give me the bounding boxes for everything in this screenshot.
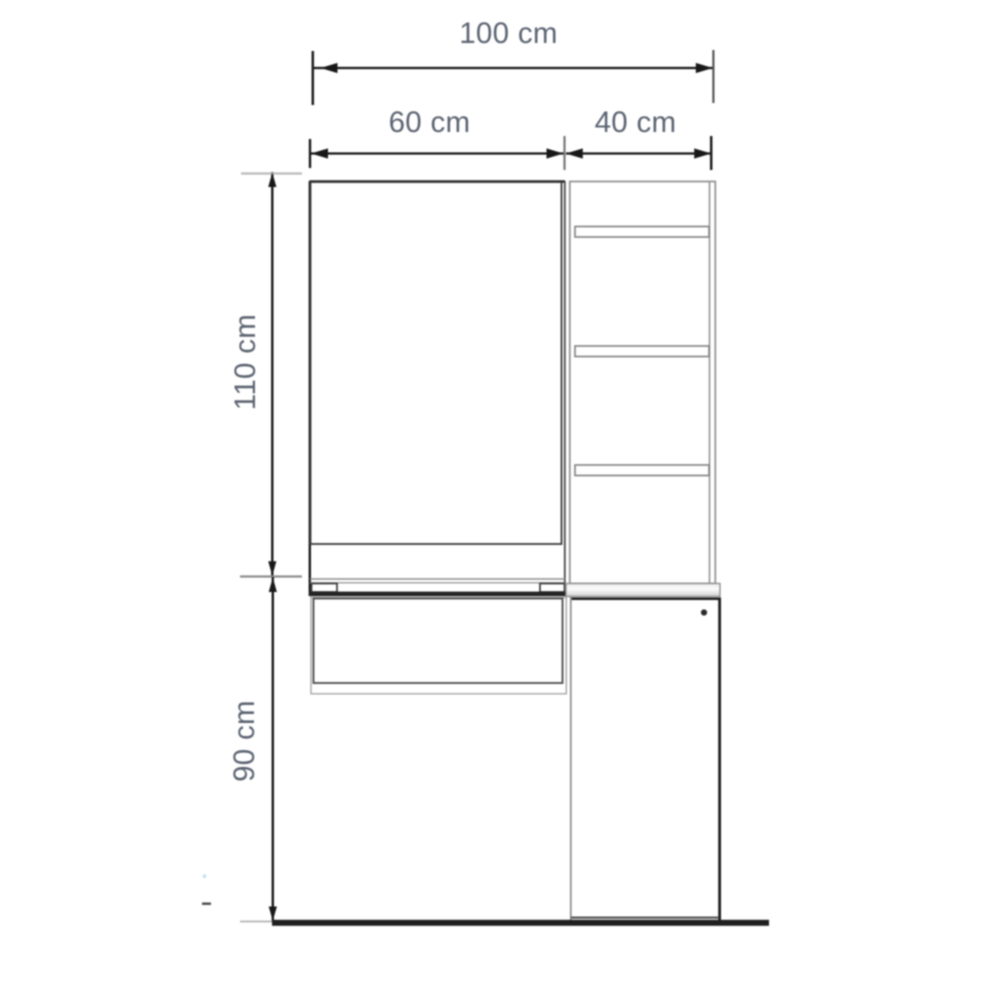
- svg-text:100 cm: 100 cm: [459, 17, 558, 50]
- svg-text:40 cm: 40 cm: [595, 106, 677, 139]
- svg-text:90 cm: 90 cm: [228, 700, 261, 782]
- svg-text:110 cm: 110 cm: [229, 314, 262, 410]
- svg-text:60 cm: 60 cm: [389, 106, 471, 139]
